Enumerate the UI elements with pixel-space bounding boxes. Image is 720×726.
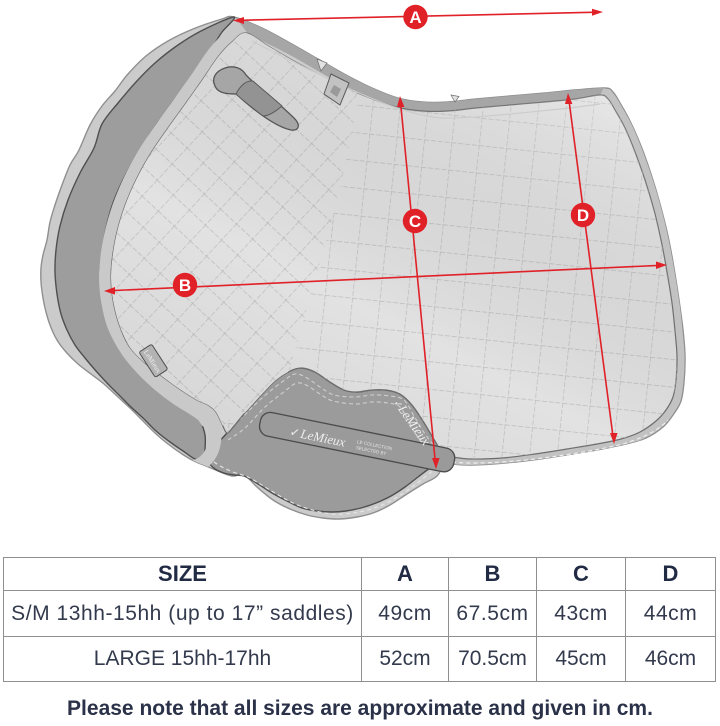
svg-text:B: B — [179, 276, 191, 295]
svg-text:A: A — [409, 8, 421, 27]
svg-text:C: C — [409, 212, 421, 231]
svg-text:D: D — [577, 206, 589, 225]
